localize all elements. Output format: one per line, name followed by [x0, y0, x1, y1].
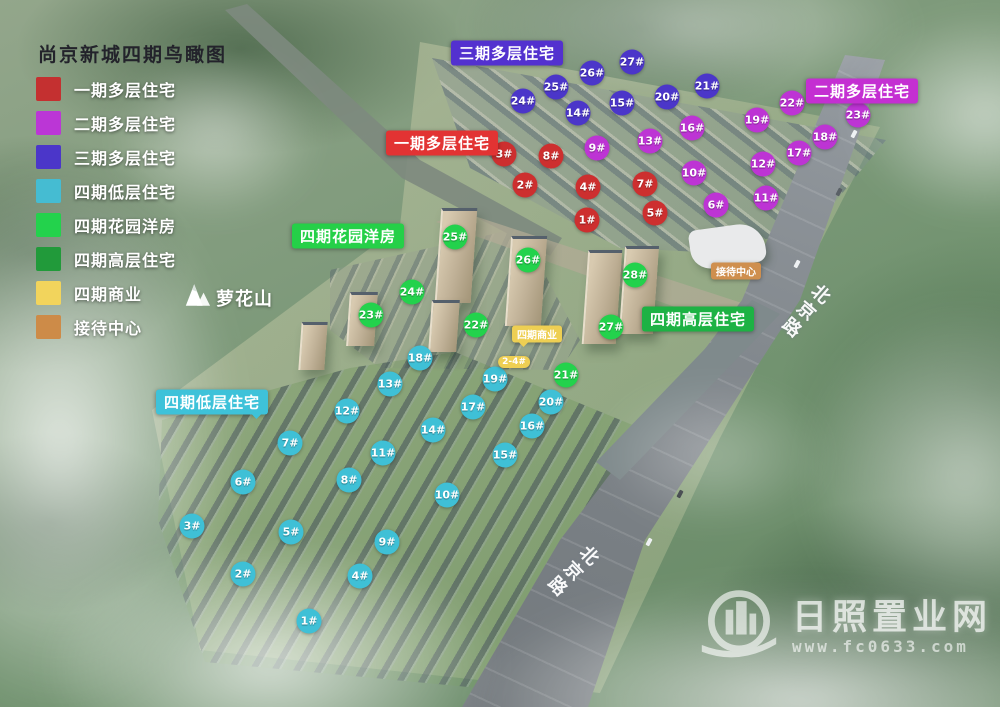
highrise-tower: [505, 236, 547, 326]
legend-item-6: 四期高层住宅: [36, 246, 176, 271]
legend-item-label: 接待中心: [74, 315, 142, 339]
legend-item-label: 四期低层住宅: [74, 179, 176, 203]
legend-item-label: 二期多层住宅: [74, 111, 176, 135]
legend-color-swatch: [36, 315, 61, 339]
legend-color-swatch: [36, 213, 61, 237]
mountain-icon: [183, 283, 211, 311]
watermark-logo-icon: [698, 584, 780, 670]
legend-item-7: 四期商业: [36, 280, 176, 305]
garden-building: [428, 300, 460, 352]
legend-item-label: 四期花园洋房: [74, 213, 176, 237]
legend-item-2: 二期多层住宅: [36, 110, 176, 135]
legend-item-label: 三期多层住宅: [74, 145, 176, 169]
legend-color-swatch: [36, 247, 61, 271]
watermark-text: 日照置业网 www.fc0633.com: [792, 599, 992, 656]
legend-color-swatch: [36, 77, 61, 101]
legend-item-5: 四期花园洋房: [36, 212, 176, 237]
legend-color-swatch: [36, 145, 61, 169]
legend-color-swatch: [36, 179, 61, 203]
birdseye-map: 北京路北京路 27#26#25#24#21#20#15#14#22#23#19#…: [0, 0, 1000, 707]
legend-item-1: 一期多层住宅: [36, 76, 176, 101]
watermark-site-url: www.fc0633.com: [792, 637, 992, 656]
highrise-tower: [582, 250, 623, 344]
highrise-tower: [619, 246, 659, 334]
legend: 一期多层住宅二期多层住宅三期多层住宅四期低层住宅四期花园洋房四期高层住宅四期商业…: [36, 76, 176, 348]
legend-item-label: 四期高层住宅: [74, 247, 176, 271]
mountain-name: 萝花山: [216, 285, 273, 311]
legend-color-swatch: [36, 111, 61, 135]
mountain-label: 萝花山: [183, 283, 273, 311]
garden-building: [346, 292, 378, 346]
highrise-tower: [435, 208, 478, 303]
legend-item-label: 四期商业: [74, 281, 142, 305]
legend-color-swatch: [36, 281, 61, 305]
legend-item-3: 三期多层住宅: [36, 144, 176, 169]
watermark-site-name: 日照置业网: [792, 599, 992, 637]
watermark: 日照置业网 www.fc0633.com: [698, 584, 992, 670]
garden-building: [298, 322, 327, 370]
legend-item-8: 接待中心: [36, 314, 176, 339]
legend-item-4: 四期低层住宅: [36, 178, 176, 203]
legend-item-label: 一期多层住宅: [74, 77, 176, 101]
page-title: 尚京新城四期鸟瞰图: [38, 40, 227, 67]
